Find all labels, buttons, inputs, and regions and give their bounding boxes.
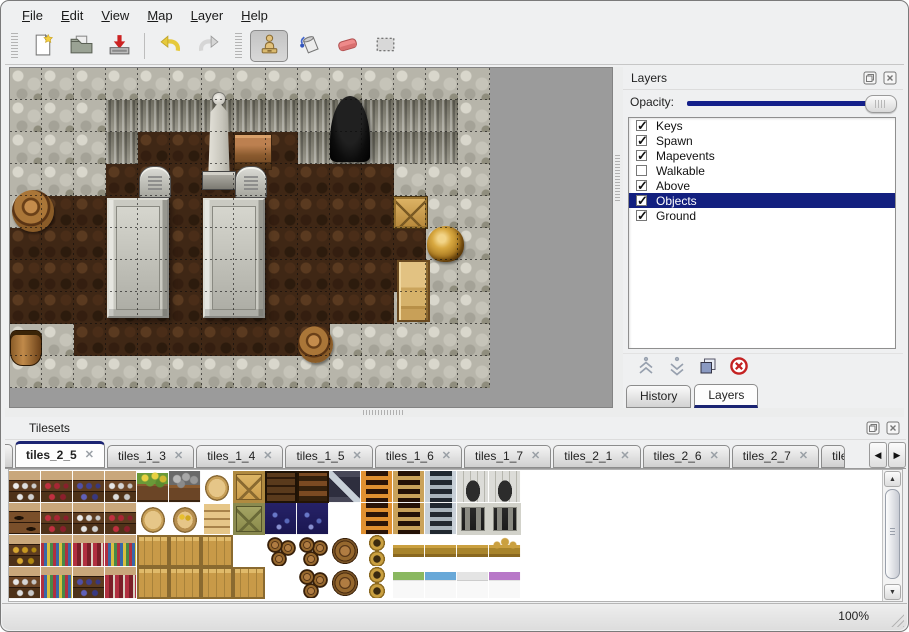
map-tile[interactable]: [74, 164, 106, 196]
map-tile[interactable]: [330, 68, 362, 100]
menu-layer[interactable]: Layer: [182, 6, 233, 26]
tileset-scrollbar[interactable]: ▲ ▼: [882, 470, 902, 601]
map-tile[interactable]: [10, 228, 42, 260]
map-tile[interactable]: [426, 260, 458, 292]
tileset-tab-label: tiles_1_5: [296, 445, 344, 468]
eraser-icon: [335, 32, 360, 60]
map-tile[interactable]: [42, 292, 74, 324]
tileset-tile-crate[interactable]: [169, 535, 201, 567]
scroll-up-button[interactable]: ▲: [884, 471, 901, 487]
undo-icon: [158, 32, 183, 60]
close-tab-icon[interactable]: ✕: [531, 445, 540, 468]
map-canvas-area[interactable]: [9, 67, 613, 408]
map-tile[interactable]: [266, 228, 298, 260]
tileset-tile-navy[interactable]: [265, 503, 297, 535]
tileset-tab-tiles_2[interactable]: tiles_2✕: [821, 445, 845, 468]
redo-button[interactable]: [191, 31, 225, 61]
map-tile[interactable]: [234, 324, 266, 356]
tileset-tile-ztile[interactable]: [329, 471, 361, 503]
tileset-tile-flower[interactable]: [137, 471, 169, 503]
map-tile[interactable]: [362, 68, 394, 100]
map-tile[interactable]: [266, 260, 298, 292]
tileset-tile-barrel1[interactable]: [329, 567, 361, 599]
map-tile[interactable]: [10, 100, 42, 132]
tileset-tab-label: tiles_2_6: [654, 445, 702, 468]
map-tile[interactable]: [74, 68, 106, 100]
layer-visibility-checkbox[interactable]: ✓: [636, 180, 647, 191]
layer-row-keys[interactable]: ✓Keys: [629, 118, 895, 133]
tileset-tab-label: tiles_2_1: [564, 445, 612, 468]
open-file-button[interactable]: [64, 31, 98, 61]
layer-row-above[interactable]: ✓Above: [629, 178, 895, 193]
tileset-tile-crateX[interactable]: [233, 471, 265, 503]
fill-tool-button[interactable]: [292, 31, 326, 61]
tileset-tile-arch[interactable]: [489, 471, 521, 503]
map-tile[interactable]: [106, 164, 138, 196]
map-tile[interactable]: [106, 100, 138, 132]
map-tile[interactable]: [362, 260, 394, 292]
map-tile[interactable]: [74, 260, 106, 292]
map-tile[interactable]: [266, 292, 298, 324]
menu-edit[interactable]: Edit: [52, 6, 92, 26]
tileset-tile-shelfE[interactable]: [9, 503, 41, 535]
map-tile[interactable]: [106, 356, 138, 388]
new-file-icon: [31, 32, 56, 60]
panel-tab-history[interactable]: History: [626, 385, 691, 408]
map-tile[interactable]: [234, 356, 266, 388]
map-tile[interactable]: [170, 164, 202, 196]
close-tab-icon[interactable]: ✕: [263, 445, 272, 468]
map-tile[interactable]: [138, 100, 170, 132]
panel-tab-bar: HistoryLayers: [626, 384, 761, 408]
map-tile[interactable]: [170, 324, 202, 356]
map-tile[interactable]: [362, 292, 394, 324]
close-tab-icon[interactable]: ✕: [620, 445, 629, 468]
tileset-tile-empty[interactable]: [521, 567, 553, 599]
tileset-tile-barrel1[interactable]: [329, 535, 361, 567]
tileset-tab-label: tiles_2_7: [743, 445, 791, 468]
layer-row-walkable[interactable]: Walkable: [629, 163, 895, 178]
close-tab-icon[interactable]: ✕: [353, 445, 362, 468]
map-tile[interactable]: [458, 324, 490, 356]
map-tile[interactable]: [298, 132, 330, 164]
map-tile[interactable]: [362, 324, 394, 356]
tilesets-panel-header: Tilesets: [5, 417, 906, 440]
map-object-crate: [393, 196, 428, 229]
scrollbar-thumb[interactable]: [885, 489, 900, 579]
tileset-tile-shelfF[interactable]: [105, 535, 137, 567]
float-panel-icon[interactable]: [863, 71, 877, 85]
tileset-tile-shelfA[interactable]: [9, 471, 41, 503]
map-tile[interactable]: [138, 132, 170, 164]
tileset-tile-crateXd[interactable]: [233, 503, 265, 535]
tileset-tab-tiles_2_7[interactable]: tiles_2_7✕: [732, 445, 819, 468]
duplicate-layer-icon: [698, 356, 718, 379]
tileset-tab-label: tiles_2_5: [26, 444, 77, 467]
map-tile[interactable]: [394, 100, 426, 132]
map-object-grave: [139, 166, 171, 198]
stamp-tool-icon: [257, 32, 282, 60]
map-tile[interactable]: [426, 324, 458, 356]
map-tile[interactable]: [266, 196, 298, 228]
map-tile[interactable]: [426, 100, 458, 132]
tileset-tile-shelfF[interactable]: [41, 535, 73, 567]
tileset-tile-crate[interactable]: [169, 567, 201, 599]
map-tile[interactable]: [170, 68, 202, 100]
menu-file[interactable]: File: [13, 6, 52, 26]
map-tile[interactable]: [362, 356, 394, 388]
tileset-tab-tiles_1_7[interactable]: tiles_1_7✕: [464, 445, 551, 468]
stamp-tool-button[interactable]: [250, 30, 288, 62]
tileset-tile-shelfB[interactable]: [41, 503, 73, 535]
layer-list: ✓Keys✓Spawn✓MapeventsWalkable✓Above✓Obje…: [628, 117, 896, 349]
layer-visibility-checkbox[interactable]: ✓: [636, 135, 647, 146]
tileset-tile-shelfB[interactable]: [41, 471, 73, 503]
tileset-tile-empty[interactable]: [521, 471, 553, 503]
map-tile[interactable]: [170, 228, 202, 260]
scrolled-tab-sliver[interactable]: [5, 444, 13, 468]
map-tile[interactable]: [138, 68, 170, 100]
tileset-tab-label: tiles_1_3: [118, 445, 166, 468]
tileset-tile-bedH[interactable]: [425, 535, 457, 567]
layer-visibility-checkbox[interactable]: [636, 165, 647, 176]
map-object-slab: [107, 198, 169, 318]
map-tile[interactable]: [426, 196, 458, 228]
tileset-tile-crate[interactable]: [233, 567, 265, 599]
map-tile[interactable]: [170, 292, 202, 324]
horizontal-splitter[interactable]: [5, 408, 904, 417]
tile-map[interactable]: [10, 68, 490, 388]
tileset-tile-ladO[interactable]: [361, 471, 393, 503]
tileset-tab-tiles_2_6[interactable]: tiles_2_6✕: [643, 445, 730, 468]
new-file-button[interactable]: [26, 31, 60, 61]
save-icon: [107, 32, 132, 60]
map-tile[interactable]: [394, 324, 426, 356]
map-tile[interactable]: [458, 292, 490, 324]
tileset-tab-label: tiles_2: [832, 445, 845, 468]
map-tile[interactable]: [234, 68, 266, 100]
map-tile[interactable]: [170, 132, 202, 164]
layer-buttons-row: [623, 353, 903, 381]
map-tile[interactable]: [426, 132, 458, 164]
toolbar-separator: [144, 33, 145, 59]
map-tile[interactable]: [426, 356, 458, 388]
layers-panel-title: Layers: [631, 71, 667, 85]
map-tile[interactable]: [106, 132, 138, 164]
map-object-bucket: [10, 330, 42, 366]
raise-layer-button[interactable]: [635, 357, 657, 379]
map-tile[interactable]: [426, 164, 458, 196]
tileset-tile-gate[interactable]: [489, 503, 521, 535]
map-tile[interactable]: [330, 356, 362, 388]
map-tile[interactable]: [362, 228, 394, 260]
map-tile[interactable]: [74, 228, 106, 260]
toolbar-drag-handle[interactable]: [235, 33, 242, 59]
map-tile[interactable]: [330, 292, 362, 324]
map-tile[interactable]: [106, 68, 138, 100]
map-tile[interactable]: [394, 228, 426, 260]
layer-visibility-checkbox[interactable]: ✓: [636, 150, 647, 161]
map-tile[interactable]: [394, 132, 426, 164]
layer-row-mapevents[interactable]: ✓Mapevents: [629, 148, 895, 163]
status-bar: 100%: [2, 603, 907, 630]
map-tile[interactable]: [138, 356, 170, 388]
map-tile[interactable]: [330, 228, 362, 260]
tileset-tile-crate[interactable]: [201, 535, 233, 567]
map-tile[interactable]: [298, 196, 330, 228]
close-tab-icon[interactable]: ✕: [174, 445, 183, 468]
delete-layer-button[interactable]: [728, 357, 750, 379]
tileset-tile-gate[interactable]: [457, 503, 489, 535]
tileset-tile-empty[interactable]: [233, 535, 265, 567]
open-folder-icon: [69, 32, 94, 60]
map-tile[interactable]: [74, 196, 106, 228]
tileset-tile-empty[interactable]: [521, 503, 553, 535]
tileset-tab-tiles_1_6[interactable]: tiles_1_6✕: [375, 445, 462, 468]
tileset-tile-crate[interactable]: [201, 567, 233, 599]
map-tile[interactable]: [170, 196, 202, 228]
tileset-tile-rocks[interactable]: [169, 471, 201, 503]
tileset-tile-shelfC[interactable]: [73, 567, 105, 599]
map-tile[interactable]: [266, 356, 298, 388]
selection-rectangle-icon: [373, 32, 398, 60]
map-tile[interactable]: [458, 196, 490, 228]
panel-tab-layers[interactable]: Layers: [694, 384, 758, 408]
layer-label: Walkable: [656, 164, 705, 178]
map-tile[interactable]: [394, 356, 426, 388]
map-tile[interactable]: [74, 100, 106, 132]
map-tile[interactable]: [362, 164, 394, 196]
scroll-up-icon: ▲: [889, 476, 896, 483]
tileset-tile-stripes[interactable]: [297, 471, 329, 503]
select-tool-button[interactable]: [368, 31, 402, 61]
map-tile[interactable]: [170, 100, 202, 132]
tileset-tile-bedG[interactable]: [393, 567, 425, 599]
vertical-splitter[interactable]: [613, 67, 623, 408]
toolbar-drag-handle[interactable]: [11, 33, 18, 59]
map-object-barrel: [298, 326, 333, 363]
map-tile[interactable]: [74, 324, 106, 356]
map-tile[interactable]: [42, 68, 74, 100]
tileset-tile-shelfB[interactable]: [105, 503, 137, 535]
map-tile[interactable]: [10, 260, 42, 292]
zoom-level: 100%: [838, 609, 869, 623]
tileset-tile-ladG[interactable]: [425, 503, 457, 535]
tileset-tile-ladO[interactable]: [361, 503, 393, 535]
map-tile[interactable]: [170, 260, 202, 292]
tileset-tile-crate[interactable]: [137, 535, 169, 567]
tileset-tile-sack[interactable]: [137, 503, 169, 535]
lower-layer-button[interactable]: [666, 357, 688, 379]
map-tile[interactable]: [138, 324, 170, 356]
tileset-tile-pots[interactable]: [361, 535, 393, 567]
menu-view[interactable]: View: [92, 6, 138, 26]
map-tile[interactable]: [74, 292, 106, 324]
tileset-tile-ladG[interactable]: [425, 471, 457, 503]
map-tile[interactable]: [298, 260, 330, 292]
map-tile[interactable]: [42, 260, 74, 292]
tileset-tile-shelfH[interactable]: [9, 535, 41, 567]
map-tile[interactable]: [458, 68, 490, 100]
layer-label: Ground: [656, 209, 696, 223]
map-tile[interactable]: [106, 324, 138, 356]
map-tile[interactable]: [458, 100, 490, 132]
map-object-grave: [235, 166, 267, 198]
undo-button[interactable]: [153, 31, 187, 61]
close-tab-icon[interactable]: ✕: [442, 445, 451, 468]
map-tile[interactable]: [298, 164, 330, 196]
map-tile[interactable]: [10, 68, 42, 100]
tileset-tile-arch[interactable]: [457, 471, 489, 503]
map-tile[interactable]: [458, 132, 490, 164]
opacity-row: Opacity:: [623, 92, 903, 114]
resize-grip[interactable]: [887, 610, 904, 627]
layer-row-spawn[interactable]: ✓Spawn: [629, 133, 895, 148]
tileset-tile-empty[interactable]: [265, 567, 297, 599]
map-tile[interactable]: [298, 228, 330, 260]
close-tab-icon[interactable]: ✕: [85, 444, 94, 467]
scroll-tabs-right-button[interactable]: ▶: [888, 442, 906, 468]
tileset-tile-bedW[interactable]: [457, 567, 489, 599]
paint-bucket-icon: [297, 32, 322, 60]
tileset-tile-ladB[interactable]: [393, 503, 425, 535]
layer-row-ground[interactable]: ✓Ground: [629, 208, 895, 223]
tileset-tile-shelfF[interactable]: [41, 567, 73, 599]
tileset-tile-bedB[interactable]: [425, 567, 457, 599]
eraser-tool-button[interactable]: [330, 31, 364, 61]
map-tile[interactable]: [266, 324, 298, 356]
scroll-down-button[interactable]: ▼: [884, 584, 901, 600]
layer-visibility-checkbox[interactable]: ✓: [636, 120, 647, 131]
map-object-vase: [427, 226, 464, 262]
map-tile[interactable]: [426, 68, 458, 100]
opacity-slider[interactable]: [687, 92, 897, 114]
opacity-slider-track[interactable]: [687, 101, 893, 106]
map-object-statue: [202, 92, 236, 190]
map-tile[interactable]: [330, 164, 362, 196]
map-tile[interactable]: [74, 356, 106, 388]
map-tile[interactable]: [330, 260, 362, 292]
tileset-tile-empty[interactable]: [329, 503, 361, 535]
close-tab-icon[interactable]: ✕: [710, 445, 719, 468]
map-tile[interactable]: [298, 68, 330, 100]
tileset-tile-barrels[interactable]: [265, 535, 297, 567]
close-tab-icon[interactable]: ✕: [799, 445, 808, 468]
layer-label: Keys: [656, 119, 683, 133]
layer-label: Above: [656, 179, 690, 193]
tileset-tile-shelfG[interactable]: [73, 535, 105, 567]
map-tile[interactable]: [458, 260, 490, 292]
splitter-grip: [615, 155, 620, 201]
tileset-tile-empty[interactable]: [521, 535, 553, 567]
map-tile[interactable]: [42, 132, 74, 164]
map-tile[interactable]: [458, 356, 490, 388]
map-tile[interactable]: [458, 164, 490, 196]
map-tile[interactable]: [266, 100, 298, 132]
scroll-down-icon: ▼: [889, 589, 896, 596]
tileset-tile-bedP[interactable]: [489, 567, 521, 599]
tileset-tile-sackO[interactable]: [169, 503, 201, 535]
map-tile[interactable]: [394, 164, 426, 196]
tileset-tab-tiles_2_5[interactable]: tiles_2_5✕: [15, 441, 105, 468]
map-tile[interactable]: [42, 164, 74, 196]
map-tile[interactable]: [266, 68, 298, 100]
tileset-tile-barrels[interactable]: [297, 535, 329, 567]
duplicate-layer-button[interactable]: [697, 357, 719, 379]
map-tile[interactable]: [42, 228, 74, 260]
float-panel-icon[interactable]: [866, 421, 880, 435]
tileset-tile-crateD[interactable]: [265, 471, 297, 503]
menu-map[interactable]: Map: [138, 6, 181, 26]
map-tile[interactable]: [202, 356, 234, 388]
scroll-tabs-left-button[interactable]: ◀: [869, 442, 887, 468]
tilesets-panel-title: Tilesets: [29, 421, 70, 435]
tileset-palette[interactable]: [9, 470, 569, 600]
map-tile[interactable]: [42, 324, 74, 356]
map-tile[interactable]: [330, 324, 362, 356]
menu-help[interactable]: Help: [232, 6, 277, 26]
map-tile[interactable]: [394, 68, 426, 100]
tileset-tile-barrels[interactable]: [297, 567, 329, 599]
tileset-tile-ladB[interactable]: [393, 471, 425, 503]
save-button[interactable]: [102, 31, 136, 61]
map-tile[interactable]: [330, 196, 362, 228]
map-tile[interactable]: [74, 132, 106, 164]
tileset-tab-label: tiles_1_7: [475, 445, 523, 468]
tileset-tile-shelfC[interactable]: [73, 471, 105, 503]
layers-panel-header: Layers: [623, 67, 903, 90]
map-tile[interactable]: [42, 100, 74, 132]
map-tile[interactable]: [42, 356, 74, 388]
map-tile[interactable]: [234, 100, 266, 132]
tileset-tile-sacks[interactable]: [201, 503, 233, 535]
layer-visibility-checkbox[interactable]: ✓: [636, 210, 647, 221]
tileset-tile-bedH[interactable]: [457, 535, 489, 567]
tileset-tile-shelfD[interactable]: [105, 471, 137, 503]
tileset-tile-crate[interactable]: [137, 567, 169, 599]
tileset-tab-tiles_1_4[interactable]: tiles_1_4✕: [196, 445, 283, 468]
map-tile[interactable]: [426, 292, 458, 324]
tilesets-panel: Tilesets tiles_2_5✕tiles_1_3✕tiles_1_4✕t…: [5, 417, 906, 605]
tileset-tab-tiles_1_3[interactable]: tiles_1_3✕: [107, 445, 194, 468]
tileset-tab-tiles_1_5[interactable]: tiles_1_5✕: [285, 445, 372, 468]
tileset-tile-pots[interactable]: [361, 567, 393, 599]
layer-row-objects[interactable]: ✓Objects: [629, 193, 895, 208]
map-tile[interactable]: [202, 324, 234, 356]
tileset-tile-bedC[interactable]: [489, 535, 521, 567]
tileset-tile-bedH[interactable]: [393, 535, 425, 567]
tileset-content: ▲ ▼: [8, 469, 903, 602]
map-tile[interactable]: [10, 292, 42, 324]
map-object-cabinet: [397, 260, 430, 322]
map-tile[interactable]: [298, 100, 330, 132]
app-window: FileEditViewMapLayerHelp: [0, 0, 909, 632]
close-panel-icon[interactable]: [883, 71, 897, 85]
map-tile[interactable]: [362, 196, 394, 228]
tileset-tab-tiles_2_1[interactable]: tiles_2_1✕: [553, 445, 640, 468]
tileset-tile-sack[interactable]: [201, 471, 233, 503]
tileset-tile-shelfG[interactable]: [105, 567, 137, 599]
tileset-tile-navy[interactable]: [297, 503, 329, 535]
layer-visibility-checkbox[interactable]: ✓: [636, 195, 647, 206]
tileset-tile-shelfD[interactable]: [9, 567, 41, 599]
map-tile[interactable]: [170, 356, 202, 388]
map-tile[interactable]: [10, 132, 42, 164]
opacity-slider-handle[interactable]: [865, 95, 897, 113]
close-panel-icon[interactable]: [886, 421, 900, 435]
tileset-tile-shelfA[interactable]: [73, 503, 105, 535]
map-tile[interactable]: [298, 292, 330, 324]
